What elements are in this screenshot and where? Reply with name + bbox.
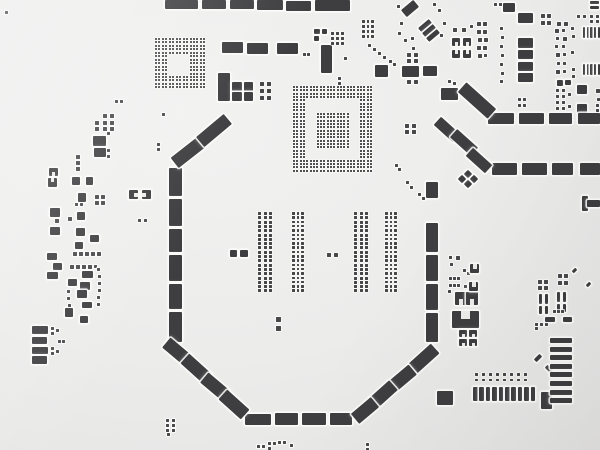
comb-bottom-dots-cell bbox=[475, 379, 478, 382]
bga-large-outer-cell bbox=[296, 143, 298, 145]
bga-large-outer-cell bbox=[316, 93, 318, 95]
bga-large-outer-cell bbox=[353, 86, 355, 88]
bga-large-inner-cell bbox=[343, 130, 345, 132]
stencil-pad-rotated bbox=[409, 344, 440, 374]
bga-large-outer-cell bbox=[367, 109, 369, 111]
connector-col-2-cell bbox=[297, 225, 300, 228]
stencil-pad bbox=[518, 38, 533, 48]
connector-col-2-cell bbox=[301, 221, 304, 224]
bga-large-outer-cell bbox=[357, 86, 359, 88]
bga-large-inner-cell bbox=[333, 120, 335, 122]
stencil-dot bbox=[556, 107, 559, 110]
stencil-dot bbox=[167, 433, 170, 436]
bga-small-cell bbox=[158, 79, 160, 81]
connector-col-4-cell bbox=[390, 212, 393, 215]
bga-small-cell bbox=[176, 86, 178, 88]
stencil-dot bbox=[500, 27, 503, 30]
bga-small-cell bbox=[162, 48, 164, 50]
stencil-dot bbox=[564, 281, 568, 285]
bga-large-outer-cell bbox=[303, 133, 305, 135]
bga-small-cell bbox=[200, 83, 202, 85]
stencil-dot bbox=[76, 265, 80, 269]
pad-notch bbox=[142, 193, 146, 197]
connector-col-2-cell bbox=[301, 272, 304, 275]
bga-small-cell bbox=[196, 83, 198, 85]
bga-small-cell bbox=[179, 76, 181, 78]
bga-small-cell bbox=[176, 45, 178, 47]
stencil-dot bbox=[556, 37, 559, 40]
bga-large-outer-cell bbox=[367, 140, 369, 142]
bga-large-outer-cell bbox=[293, 120, 295, 122]
connector-col-3-cell bbox=[360, 229, 363, 232]
stencil-dot bbox=[562, 101, 565, 104]
connector-col-1-cell bbox=[269, 289, 272, 292]
bga-small-cell bbox=[193, 73, 195, 75]
bga-large-outer-cell bbox=[293, 93, 295, 95]
connector-col-4-cell bbox=[394, 255, 397, 258]
connector-col-1-cell bbox=[269, 225, 272, 228]
stencil-dot bbox=[483, 30, 487, 34]
bga-large-outer-cell bbox=[367, 170, 369, 172]
connector-col-4-cell bbox=[394, 277, 397, 280]
bga-large-outer-cell bbox=[360, 86, 362, 88]
bga-small-cell bbox=[169, 76, 171, 78]
bga-large-outer-cell bbox=[347, 170, 349, 172]
connector-col-1-cell bbox=[258, 281, 261, 284]
bga-large-inner-cell bbox=[347, 136, 349, 138]
bga-large-outer-cell bbox=[300, 140, 302, 142]
grid-3x4-cell bbox=[371, 30, 374, 33]
bga-small-cell bbox=[203, 45, 205, 47]
comb-bottom-dots-cell bbox=[482, 373, 485, 376]
bga-small-cell bbox=[186, 48, 188, 50]
connector-col-3-cell bbox=[354, 277, 357, 280]
bga-large-outer-cell bbox=[367, 123, 369, 125]
bga-small-cell bbox=[165, 83, 167, 85]
bga-large-outer-cell bbox=[316, 170, 318, 172]
bga-large-outer-cell bbox=[293, 89, 295, 91]
bga-large-outer-cell bbox=[293, 106, 295, 108]
stencil-dot bbox=[85, 252, 89, 256]
stencil-dot bbox=[518, 98, 521, 101]
bga-large-outer-cell bbox=[370, 96, 372, 98]
connector-col-3-cell bbox=[354, 225, 357, 228]
bga-large-outer-cell bbox=[360, 156, 362, 158]
bga-large-outer-cell bbox=[363, 160, 365, 162]
stencil-dot bbox=[398, 32, 401, 35]
comb-bottom-dots-cell bbox=[496, 373, 499, 376]
stencil-dot bbox=[457, 277, 460, 280]
bga-small-cell bbox=[193, 55, 195, 57]
bga-large-outer-cell bbox=[313, 96, 315, 98]
stencil-dot bbox=[107, 155, 110, 158]
bga-large-outer-cell bbox=[367, 160, 369, 162]
pad-notch bbox=[470, 299, 474, 305]
bga-small-cell bbox=[165, 55, 167, 57]
bga-large-outer-cell bbox=[323, 89, 325, 91]
stencil-dot bbox=[572, 35, 575, 38]
bga-small-cell bbox=[155, 83, 157, 85]
bga-large-outer-cell bbox=[357, 163, 359, 165]
bga-large-outer-cell bbox=[306, 86, 308, 88]
bga-small-cell bbox=[158, 69, 160, 71]
bga-small-cell bbox=[196, 59, 198, 61]
bga-large-outer-cell bbox=[357, 160, 359, 162]
bga-large-outer-cell bbox=[330, 170, 332, 172]
stencil-dot bbox=[501, 54, 504, 57]
bga-large-outer-cell bbox=[363, 150, 365, 152]
bga-large-outer-cell bbox=[367, 99, 369, 101]
bga-small-cell bbox=[158, 83, 160, 85]
stencil-dot bbox=[107, 149, 110, 152]
connector-col-4-cell bbox=[390, 246, 393, 249]
pad-notch bbox=[472, 282, 476, 287]
stencil-dot bbox=[563, 70, 566, 73]
bga-large-outer-cell bbox=[363, 89, 365, 91]
stencil-dot bbox=[101, 201, 105, 205]
bga-small-cell bbox=[165, 76, 167, 78]
stencil-pad bbox=[80, 282, 90, 290]
bga-small-cell bbox=[155, 55, 157, 57]
bga-small-cell bbox=[190, 45, 192, 47]
stencil-dot bbox=[393, 63, 396, 66]
bga-small-cell bbox=[158, 45, 160, 47]
bga-large-inner-cell bbox=[340, 123, 342, 125]
bga-large-outer-cell bbox=[316, 86, 318, 88]
bga-large-inner-cell bbox=[333, 130, 335, 132]
connector-col-1-cell bbox=[264, 268, 267, 271]
bga-large-inner-cell bbox=[343, 113, 345, 115]
connector-col-4-cell bbox=[390, 242, 393, 245]
bga-large-inner-cell bbox=[347, 120, 349, 122]
connector-col-4-cell bbox=[394, 238, 397, 241]
bga-large-outer-cell bbox=[360, 140, 362, 142]
connector-col-4-cell bbox=[390, 264, 393, 267]
bga-small-cell bbox=[165, 62, 167, 64]
stencil-pad bbox=[539, 306, 542, 314]
stencil-pad-rotated bbox=[401, 0, 419, 17]
bga-large-inner-cell bbox=[320, 140, 322, 142]
bga-small-cell bbox=[155, 59, 157, 61]
bga-small-cell bbox=[186, 83, 188, 85]
pad-notch bbox=[472, 334, 475, 337]
bga-small-cell bbox=[176, 83, 178, 85]
stencil-pad bbox=[580, 163, 600, 175]
bga-large-outer-cell bbox=[363, 120, 365, 122]
stencil-pad bbox=[503, 3, 515, 12]
bga-small-cell bbox=[158, 41, 160, 43]
bga-large-inner-cell bbox=[317, 143, 319, 145]
bga-large-outer-cell bbox=[370, 126, 372, 128]
bga-small-cell bbox=[200, 38, 202, 40]
bga-large-outer-cell bbox=[353, 89, 355, 91]
bga-small-cell bbox=[176, 48, 178, 50]
bga-large-outer-cell bbox=[367, 146, 369, 148]
bga-large-outer-cell bbox=[293, 166, 295, 168]
stencil-pad bbox=[47, 272, 58, 279]
bga-large-inner-cell bbox=[337, 126, 339, 128]
bga-small-cell bbox=[203, 62, 205, 64]
connector-col-1-cell bbox=[269, 238, 272, 241]
bga-large-outer-cell bbox=[300, 136, 302, 138]
stencil-pad bbox=[86, 177, 93, 185]
bga-large-outer-cell bbox=[357, 93, 359, 95]
connector-col-3-cell bbox=[360, 289, 363, 292]
stencil-pad bbox=[169, 199, 182, 226]
stencil-pad bbox=[65, 308, 73, 317]
connector-col-3-cell bbox=[354, 255, 357, 258]
stencil-pad bbox=[577, 104, 587, 113]
grid-3x4-cell bbox=[367, 25, 370, 28]
bga-small-cell bbox=[196, 45, 198, 47]
bga-large-outer-cell bbox=[303, 89, 305, 91]
bga-large-outer-cell bbox=[360, 163, 362, 165]
stencil-pad bbox=[244, 92, 253, 101]
bga-small-cell bbox=[196, 52, 198, 54]
bga-large-outer-cell bbox=[303, 109, 305, 111]
stencil-pad bbox=[244, 82, 253, 91]
bga-small-cell bbox=[179, 79, 181, 81]
stencil-pad bbox=[257, 0, 283, 10]
bga-large-inner-cell bbox=[320, 130, 322, 132]
bga-small-cell bbox=[179, 52, 181, 54]
bga-large-inner-cell bbox=[323, 130, 325, 132]
connector-col-3-cell bbox=[354, 212, 357, 215]
bga-small-cell bbox=[193, 62, 195, 64]
bga-large-outer-cell bbox=[343, 93, 345, 95]
bga-large-outer-cell bbox=[306, 166, 308, 168]
connector-col-2-cell bbox=[292, 212, 295, 215]
grid-3x3-cell bbox=[341, 32, 344, 35]
bga-small-cell bbox=[155, 41, 157, 43]
stencil-dot bbox=[453, 277, 456, 280]
stencil-notched-pad bbox=[469, 282, 478, 291]
bga-small-cell bbox=[165, 45, 167, 47]
bga-small-cell bbox=[203, 73, 205, 75]
stencil-dot bbox=[422, 197, 425, 200]
bga-small-cell bbox=[155, 79, 157, 81]
bga-large-outer-cell bbox=[337, 93, 339, 95]
bga-small-cell bbox=[165, 73, 167, 75]
bga-small-cell bbox=[193, 79, 195, 81]
bga-large-outer-cell bbox=[296, 96, 298, 98]
stencil-dot bbox=[541, 14, 545, 18]
bga-small-cell bbox=[196, 73, 198, 75]
bga-large-inner-cell bbox=[327, 113, 329, 115]
stencil-dot bbox=[596, 20, 599, 23]
bga-large-outer-cell bbox=[293, 170, 295, 172]
bga-large-outer-cell bbox=[363, 163, 365, 165]
connector-col-4-cell bbox=[385, 242, 388, 245]
bga-large-outer-cell bbox=[306, 89, 308, 91]
bga-large-inner-cell bbox=[330, 130, 332, 132]
bga-large-outer-cell bbox=[320, 93, 322, 95]
bga-large-outer-cell bbox=[370, 156, 372, 158]
connector-col-3-cell bbox=[354, 281, 357, 284]
pad-notch bbox=[466, 42, 469, 46]
stencil-dot bbox=[483, 22, 487, 26]
bga-large-outer-cell bbox=[320, 89, 322, 91]
stencil-pad bbox=[230, 0, 254, 9]
stencil-dot bbox=[58, 340, 61, 343]
stencil-pad bbox=[169, 229, 182, 252]
bga-large-outer-cell bbox=[370, 170, 372, 172]
bga-large-inner-cell bbox=[347, 146, 349, 148]
connector-col-1-cell bbox=[258, 238, 261, 241]
stencil-pad bbox=[232, 82, 242, 91]
bga-large-outer-cell bbox=[363, 156, 365, 158]
bga-small-cell bbox=[200, 86, 202, 88]
connector-col-3-cell bbox=[365, 234, 368, 237]
bga-large-outer-cell bbox=[303, 130, 305, 132]
connector-col-4-cell bbox=[394, 285, 397, 288]
bga-small-cell bbox=[162, 86, 164, 88]
bga-large-outer-cell bbox=[347, 93, 349, 95]
stencil-pad bbox=[590, 6, 599, 9]
bga-large-outer-cell bbox=[300, 106, 302, 108]
bga-small-cell bbox=[193, 66, 195, 68]
bga-large-outer-cell bbox=[300, 123, 302, 125]
bga-large-outer-cell bbox=[313, 86, 315, 88]
stencil-dot bbox=[414, 59, 418, 63]
bga-small-cell bbox=[169, 86, 171, 88]
bga-large-inner-cell bbox=[320, 143, 322, 145]
connector-col-2-cell bbox=[292, 238, 295, 241]
bga-large-outer-cell bbox=[296, 140, 298, 142]
stencil-dot bbox=[389, 60, 392, 63]
bga-small-cell bbox=[165, 48, 167, 50]
bga-large-inner-cell bbox=[330, 123, 332, 125]
bga-large-outer-cell bbox=[337, 86, 339, 88]
bga-large-inner-cell bbox=[337, 130, 339, 132]
bga-large-inner-cell bbox=[340, 120, 342, 122]
bga-small-cell bbox=[155, 48, 157, 50]
bga-small-cell bbox=[158, 55, 160, 57]
stencil-dot bbox=[110, 127, 114, 131]
connector-col-4-cell bbox=[385, 255, 388, 258]
connector-col-2-cell bbox=[297, 272, 300, 275]
comb-bottom-cell bbox=[479, 387, 484, 401]
bga-small-cell bbox=[165, 59, 167, 61]
connector-col-1-cell bbox=[264, 225, 267, 228]
bga-small-cell bbox=[200, 76, 202, 78]
stencil-pad bbox=[545, 294, 548, 304]
connector-col-2-cell bbox=[292, 264, 295, 267]
bga-large-outer-cell bbox=[337, 89, 339, 91]
stencil-dot bbox=[406, 181, 409, 184]
stencil-notched-pad bbox=[470, 264, 479, 273]
stencil-dot bbox=[563, 62, 566, 65]
connector-col-1-cell bbox=[269, 255, 272, 258]
connector-col-3-cell bbox=[360, 216, 363, 219]
stencil-dot bbox=[462, 28, 466, 32]
connector-col-4-cell bbox=[390, 281, 393, 284]
bga-large-outer-cell bbox=[327, 166, 329, 168]
bga-large-outer-cell bbox=[296, 93, 298, 95]
stencil-pad-rotated bbox=[351, 397, 379, 424]
bga-small-cell bbox=[179, 41, 181, 43]
comb-right-2-cell bbox=[594, 64, 596, 75]
bga-small-cell bbox=[155, 69, 157, 71]
comb-bottom-cell bbox=[518, 387, 523, 401]
stencil-dot bbox=[404, 39, 407, 42]
bga-small-cell bbox=[196, 69, 198, 71]
stencil-pad bbox=[77, 212, 85, 220]
stencil-dot bbox=[448, 80, 451, 83]
stencil-dot bbox=[464, 285, 467, 288]
bga-large-outer-cell bbox=[296, 133, 298, 135]
stencil-pad bbox=[426, 182, 438, 198]
stencil-dot bbox=[477, 46, 481, 50]
bga-small-cell bbox=[200, 73, 202, 75]
stencil-dot bbox=[172, 429, 175, 432]
bga-large-outer-cell bbox=[323, 170, 325, 172]
connector-col-1-cell bbox=[258, 268, 261, 271]
bga-large-outer-cell bbox=[363, 140, 365, 142]
bga-small-cell bbox=[165, 69, 167, 71]
connector-col-2-cell bbox=[292, 268, 295, 271]
bga-small-cell bbox=[158, 59, 160, 61]
bga-large-outer-cell bbox=[370, 146, 372, 148]
bga-large-outer-cell bbox=[347, 86, 349, 88]
bga-large-outer-cell bbox=[360, 166, 362, 168]
bga-large-outer-cell bbox=[300, 170, 302, 172]
comb-bottom-dots-cell bbox=[524, 379, 527, 382]
comb-right-2-cell bbox=[587, 64, 589, 75]
bga-small-cell bbox=[190, 83, 192, 85]
bga-large-outer-cell bbox=[293, 143, 295, 145]
bga-large-outer-cell bbox=[347, 160, 349, 162]
bga-large-outer-cell bbox=[293, 103, 295, 105]
connector-col-4-cell bbox=[385, 277, 388, 280]
bga-large-outer-cell bbox=[316, 89, 318, 91]
connector-col-3-cell bbox=[354, 289, 357, 292]
bga-large-outer-cell bbox=[293, 130, 295, 132]
bga-large-outer-cell bbox=[303, 166, 305, 168]
stencil-dot bbox=[262, 445, 265, 448]
stencil-dot bbox=[334, 253, 338, 257]
stencil-dot bbox=[456, 256, 460, 260]
bga-large-inner-cell bbox=[333, 123, 335, 125]
comb-right-1-cell bbox=[587, 27, 589, 38]
pcb-stencil-photo bbox=[0, 0, 600, 450]
stencil-pad bbox=[218, 73, 230, 101]
bga-large-outer-cell bbox=[293, 99, 295, 101]
bga-small-cell bbox=[172, 41, 174, 43]
connector-col-1-cell bbox=[269, 259, 272, 262]
stencil-dot bbox=[556, 95, 559, 98]
connector-col-4-cell bbox=[390, 229, 393, 232]
bga-large-outer-cell bbox=[293, 96, 295, 98]
stencil-dot bbox=[563, 37, 567, 41]
stencil-dot bbox=[501, 36, 504, 39]
bga-large-outer-cell bbox=[300, 150, 302, 152]
connector-col-3-cell bbox=[360, 272, 363, 275]
connector-col-3-cell bbox=[365, 277, 368, 280]
connector-col-1-cell bbox=[269, 234, 272, 237]
bga-large-outer-cell bbox=[370, 86, 372, 88]
connector-col-4-cell bbox=[390, 289, 393, 292]
bga-large-outer-cell bbox=[367, 93, 369, 95]
bga-small-cell bbox=[155, 45, 157, 47]
bga-large-outer-cell bbox=[313, 163, 315, 165]
connector-col-3-cell bbox=[354, 221, 357, 224]
connector-col-3-cell bbox=[365, 221, 368, 224]
bga-small-cell bbox=[200, 45, 202, 47]
stencil-dot bbox=[571, 51, 574, 54]
connector-col-4-cell bbox=[390, 221, 393, 224]
connector-col-3-cell bbox=[365, 255, 368, 258]
